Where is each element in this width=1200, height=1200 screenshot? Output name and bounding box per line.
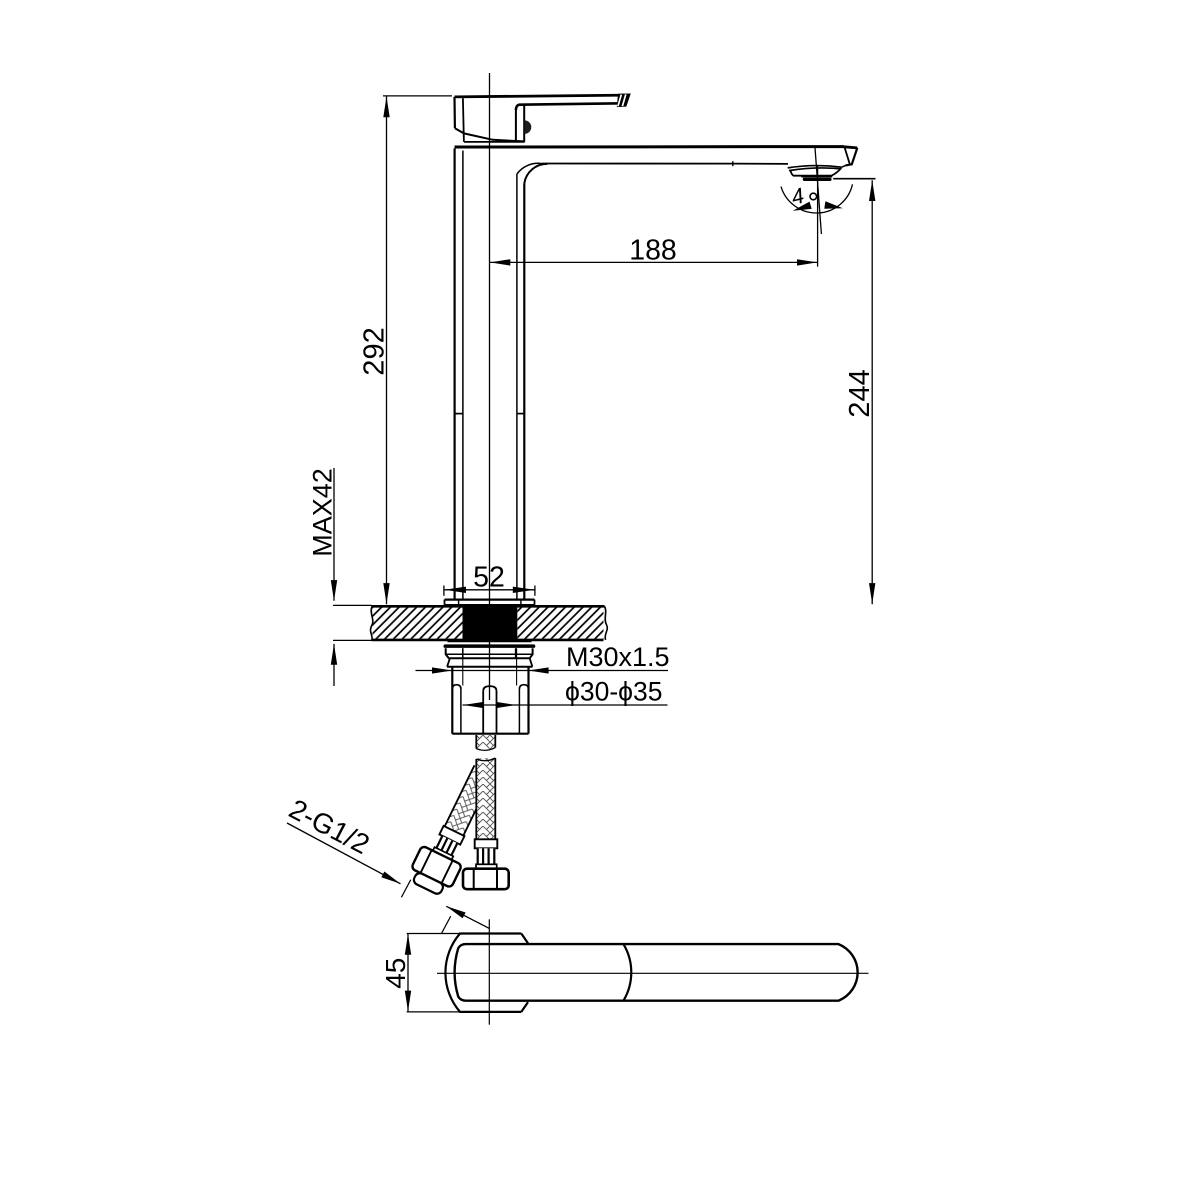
svg-text:ϕ30-ϕ35: ϕ30-ϕ35: [565, 677, 662, 707]
svg-text:244: 244: [844, 369, 876, 417]
svg-text:188: 188: [629, 235, 677, 267]
svg-text:45: 45: [380, 958, 411, 989]
svg-text:52: 52: [473, 562, 505, 594]
svg-text:M30x1.5: M30x1.5: [566, 642, 670, 672]
svg-text:292: 292: [359, 327, 391, 375]
svg-text:MAX42: MAX42: [308, 468, 338, 557]
